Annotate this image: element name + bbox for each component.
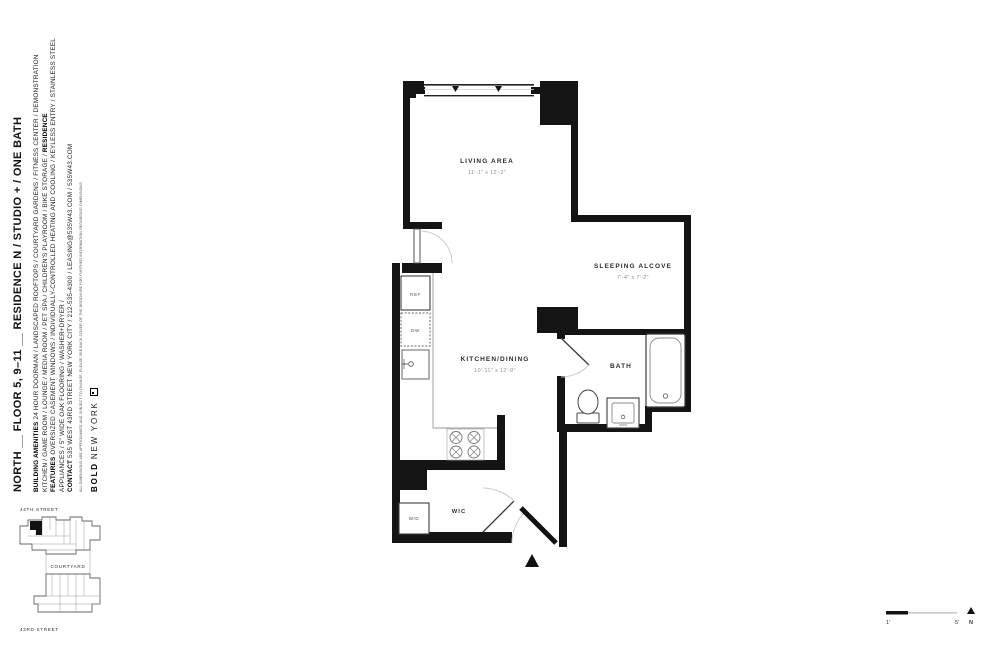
sleeping-alcove-label: SLEEPING ALCOVE bbox=[594, 263, 672, 270]
page-title: NORTH __ FLOOR 5, 9–11 __ RESIDENCE N / … bbox=[12, 36, 24, 492]
scale-start-label: 1' bbox=[886, 620, 890, 626]
logo-newyork: NEW YORK bbox=[90, 401, 99, 459]
bath-sink bbox=[607, 398, 639, 428]
disclaimer-text: ALL DIMENSIONS ARE APPROXIMATE AND SUBJE… bbox=[79, 36, 83, 492]
scale-bar-solid bbox=[886, 611, 908, 615]
scale-end-label: 5' bbox=[955, 620, 959, 626]
amenities-paragraph: BUILDING AMENITIES24 HOUR DOORMAN / LAND… bbox=[33, 36, 67, 492]
site-map: 44TH STREET COURTYARD 43RD STREET bbox=[12, 500, 112, 640]
features-text: OVERSIZED CASEMENT WINDOWS / INDIVIDUALL… bbox=[50, 38, 66, 492]
closet-door bbox=[414, 229, 452, 263]
south-building-outline bbox=[34, 574, 100, 612]
amenities-label: BUILDING AMENITIES bbox=[33, 422, 40, 492]
wic-door bbox=[483, 488, 514, 532]
street-bottom-label: 43RD STREET bbox=[20, 627, 59, 632]
scale-bar-line bbox=[908, 612, 957, 613]
residence-n-unit bbox=[30, 521, 42, 535]
dishwasher: DW bbox=[401, 313, 430, 346]
contact-label: CONTACT bbox=[67, 460, 74, 492]
contact-paragraph: CONTACT535 WEST 43RD STREET NEW YORK CIT… bbox=[67, 36, 76, 492]
living-area-label: LIVING AREA bbox=[460, 158, 514, 165]
north-building-outline bbox=[20, 517, 100, 554]
floorplan-page: NORTH __ FLOOR 5, 9–11 __ RESIDENCE N / … bbox=[0, 0, 1000, 647]
living-area-dims: 11'-1" x 12'-2" bbox=[468, 170, 506, 176]
walls bbox=[392, 81, 691, 547]
ref-label: REF bbox=[410, 292, 421, 297]
entry-door bbox=[512, 508, 556, 543]
entry-marker-icon bbox=[525, 554, 539, 567]
kitchen-sink bbox=[402, 350, 429, 379]
stove bbox=[447, 429, 484, 460]
kitchen-dining-label: KITCHEN/DINING bbox=[461, 356, 530, 363]
bold-new-york-logo: BOLD NEW YORK bbox=[90, 36, 99, 492]
bath-door bbox=[561, 338, 589, 377]
bathtub bbox=[646, 334, 685, 407]
wd-label: W/D bbox=[409, 516, 420, 521]
north-arrow-icon bbox=[967, 607, 975, 614]
kitchen-dining-dims: 10'-11" x 12'-9" bbox=[474, 368, 516, 374]
toilet bbox=[577, 390, 599, 423]
logo-bold: BOLD bbox=[90, 462, 99, 492]
north-label: N bbox=[969, 620, 973, 626]
washer-dryer: W/D bbox=[399, 503, 429, 534]
logo-square-icon bbox=[90, 388, 98, 396]
wic-label: WIC bbox=[452, 509, 467, 515]
scale-bar: 1' 5' N bbox=[880, 600, 990, 640]
courtyard-label: COURTYARD bbox=[51, 564, 86, 569]
sleeping-alcove-dims: 7'-4" x 7'-2" bbox=[617, 275, 649, 281]
sidebar: NORTH __ FLOOR 5, 9–11 __ RESIDENCE N / … bbox=[12, 36, 99, 492]
contact-text: 535 WEST 43RD STREET NEW YORK CITY / 212… bbox=[67, 144, 74, 458]
bath-label: BATH bbox=[610, 363, 632, 370]
dw-label: DW bbox=[411, 328, 420, 333]
window bbox=[424, 84, 534, 96]
floor-plan: REF DW bbox=[385, 70, 705, 575]
refrigerator: REF bbox=[401, 276, 430, 310]
street-top-label: 44TH STREET bbox=[20, 507, 58, 512]
